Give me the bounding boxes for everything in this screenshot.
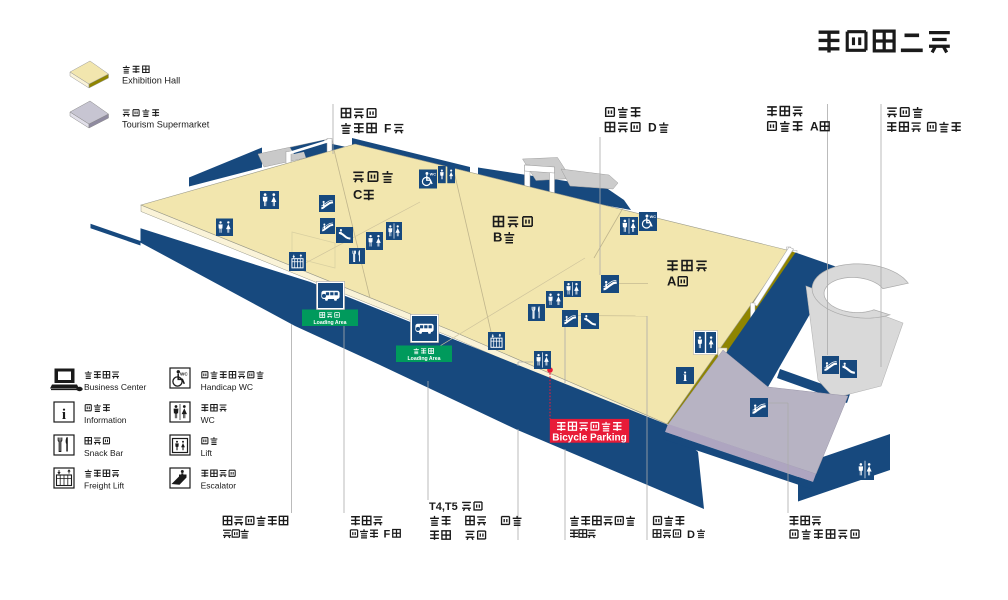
svg-text:D: D <box>648 121 657 135</box>
svg-text:Tourism Supermarket: Tourism Supermarket <box>122 120 210 130</box>
svg-text:C: C <box>353 187 363 202</box>
svg-text:F: F <box>384 529 391 541</box>
svg-text:i: i <box>683 370 687 385</box>
svg-text:Handicap WC: Handicap WC <box>201 382 253 392</box>
svg-text:WC: WC <box>201 415 215 425</box>
svg-text:T4,T5: T4,T5 <box>429 501 458 513</box>
svg-text:Exhibition Hall: Exhibition Hall <box>122 75 180 85</box>
svg-text:Bicycle Parking: Bicycle Parking <box>552 433 626 444</box>
svg-text:Business Center: Business Center <box>84 382 147 392</box>
svg-text:D: D <box>687 529 695 541</box>
svg-text:WC: WC <box>180 372 188 377</box>
svg-text:A: A <box>810 120 819 134</box>
svg-text:B: B <box>493 230 502 245</box>
svg-text:Loading Area: Loading Area <box>408 356 441 362</box>
svg-text:Lift: Lift <box>201 448 213 458</box>
svg-text:F: F <box>384 122 391 136</box>
svg-text:i: i <box>62 407 66 423</box>
svg-text:Loading Area: Loading Area <box>314 320 347 326</box>
svg-text:Escalator: Escalator <box>201 481 237 491</box>
svg-text:A: A <box>667 274 677 289</box>
svg-text:Snack Bar: Snack Bar <box>84 448 123 458</box>
svg-text:Information: Information <box>84 415 127 425</box>
svg-text:Freight Lift: Freight Lift <box>84 481 125 491</box>
